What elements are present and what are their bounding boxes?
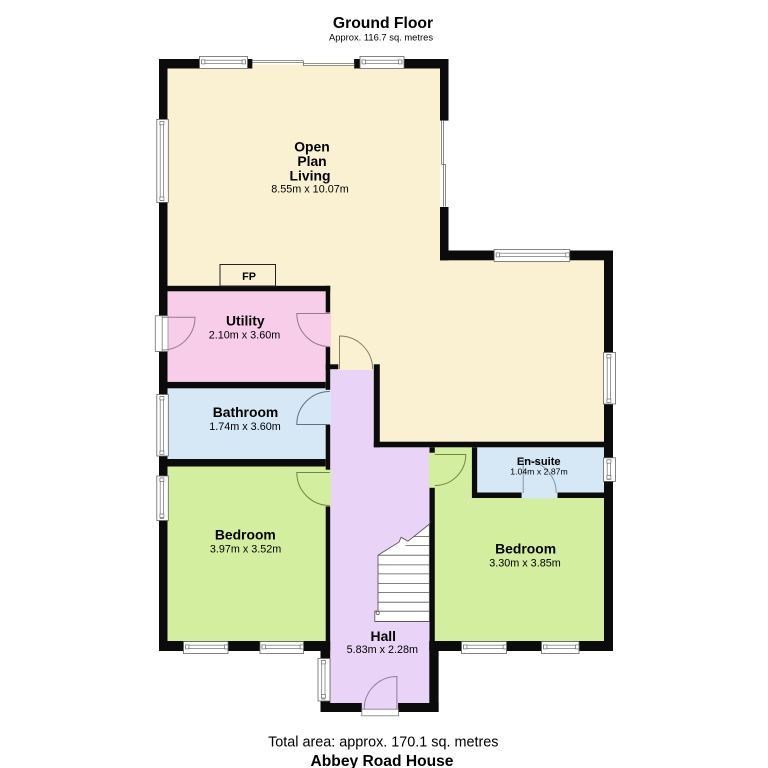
svg-text:5.83m x 2.28m: 5.83m x 2.28m [347,644,418,656]
svg-text:3.97m x 3.52m: 3.97m x 3.52m [210,544,281,556]
svg-text:Ground Floor: Ground Floor [333,15,433,32]
svg-text:2.10m x 3.60m: 2.10m x 3.60m [209,329,280,341]
svg-text:Bedroom: Bedroom [495,541,556,557]
svg-text:1.04m x 2.87m: 1.04m x 2.87m [510,467,567,477]
svg-text:1.74m x 3.60m: 1.74m x 3.60m [209,421,280,433]
svg-text:Hall: Hall [371,628,396,644]
svg-text:3.30m x 3.85m: 3.30m x 3.85m [489,558,560,570]
svg-text:8.55m x 10.07m: 8.55m x 10.07m [271,183,348,195]
svg-text:Total area: approx. 170.1 sq.: Total area: approx. 170.1 sq. metres [268,735,498,751]
svg-text:Living: Living [290,167,331,183]
svg-text:Bathroom: Bathroom [213,404,279,420]
svg-text:Utility: Utility [226,313,265,329]
svg-text:FP: FP [242,271,256,283]
svg-text:Approx. 116.7 sq. metres: Approx. 116.7 sq. metres [329,32,433,43]
svg-text:Abbey Road House: Abbey Road House [311,753,454,768]
svg-text:Bedroom: Bedroom [215,527,276,543]
